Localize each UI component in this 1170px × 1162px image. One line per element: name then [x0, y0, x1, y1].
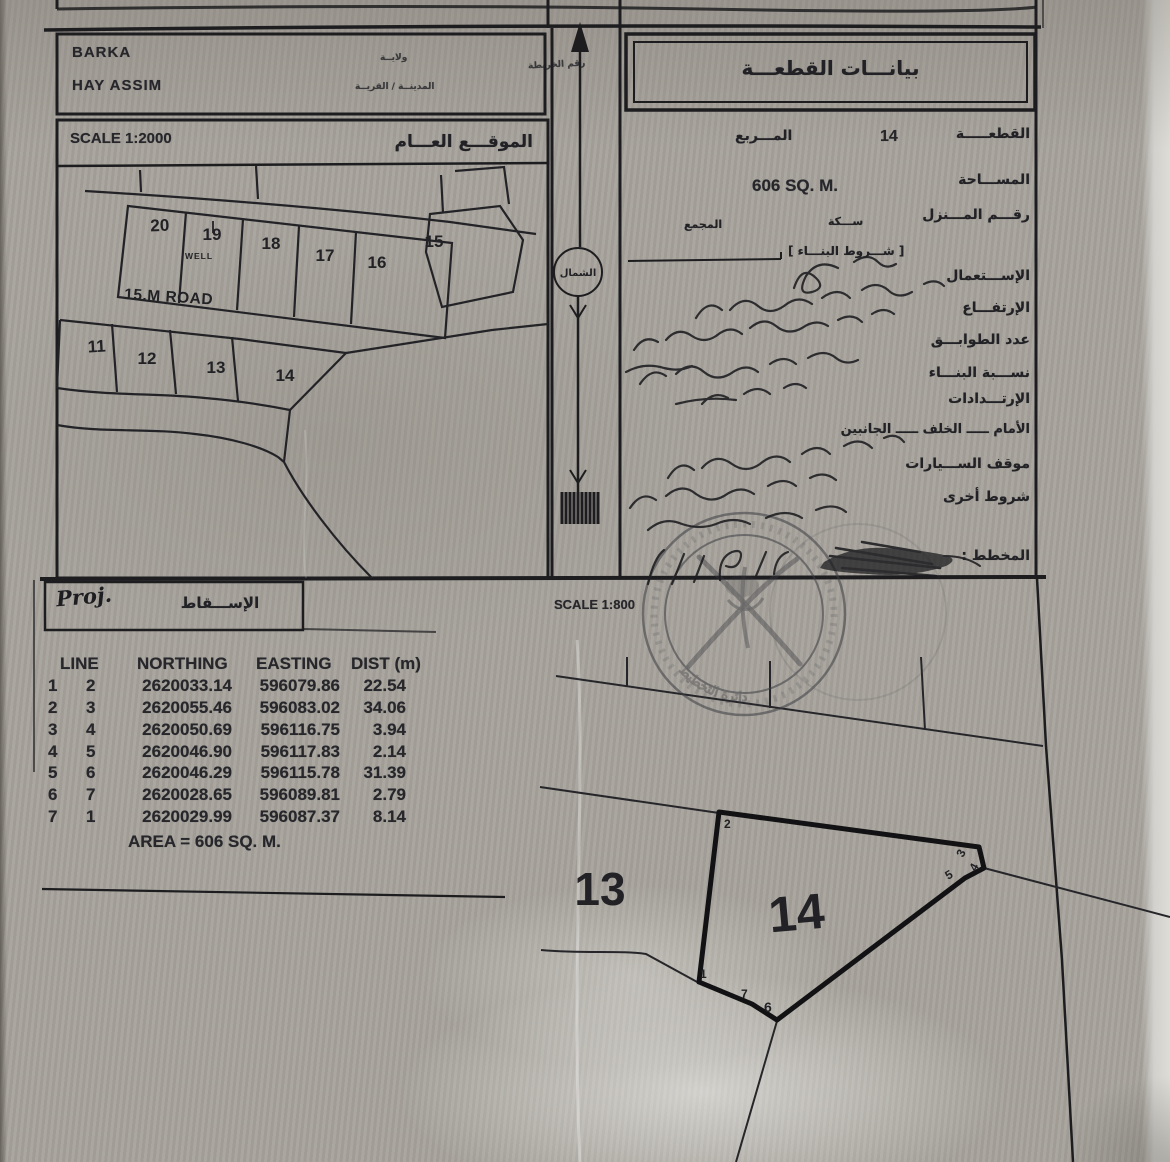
vertex-4: 4	[966, 861, 982, 874]
cell: 2620050.69	[126, 720, 232, 740]
vertex-5: 5	[943, 867, 956, 883]
vertex-2: 2	[724, 817, 731, 831]
house-number-label: رقـــم المـــنزل	[922, 207, 1030, 223]
scanned-krooki-plot-document: دائرة التخطيط 20 19 18 17 16 15	[0, 0, 1170, 1162]
cell: 1	[86, 807, 95, 827]
vertex-1: 1	[700, 967, 707, 981]
area-label: المســـاحة	[958, 172, 1030, 188]
cell: 1	[48, 676, 57, 696]
plot-data-panel-title: بيانـــات القطعـــة	[634, 56, 1027, 80]
town-name: BARKA	[72, 44, 131, 61]
cell: 8.14	[340, 807, 406, 827]
cell: 2620055.46	[126, 698, 232, 718]
cell: 3	[48, 720, 57, 740]
cell: 596117.83	[244, 742, 340, 762]
cell: 596083.02	[244, 698, 340, 718]
col-line: LINE	[60, 654, 99, 674]
map-plot-18: 18	[262, 234, 281, 253]
cell: 4	[48, 742, 57, 762]
map-plot-13: 13	[207, 358, 226, 377]
table-row: 452620046.90596117.832.14	[40, 742, 515, 762]
diagram-labels: 13 14 2 3 4 5 6 7 1	[574, 817, 982, 1015]
ratio-label: نســـبة البنـــاء	[929, 365, 1030, 381]
cell: 3	[86, 698, 95, 718]
table-row: 342620050.69596116.753.94	[40, 720, 515, 740]
map-scale-label: SCALE 1:2000	[70, 130, 172, 147]
handwritten-annotations	[626, 257, 980, 584]
location-map-drawing	[57, 166, 548, 578]
cell: 7	[86, 785, 95, 805]
cell: 2	[48, 698, 57, 718]
map-plot-12: 12	[138, 349, 157, 368]
vertex-labels: 2 3 4 5 6 7 1	[700, 817, 982, 1015]
proj-handwritten-note: Proj.	[55, 582, 113, 612]
height-label: الإرتفـــاع	[962, 300, 1030, 316]
cell: 2620033.14	[126, 676, 232, 696]
table-row: 122620033.14596079.8622.54	[40, 676, 515, 696]
street-label: ســـكة	[828, 215, 863, 228]
block-label: المـــربع	[735, 128, 792, 144]
cell: 2620029.99	[126, 807, 232, 827]
cell: 6	[48, 785, 57, 805]
plot-label: القطعـــــة	[956, 126, 1030, 142]
north-label: الشمال	[560, 268, 597, 279]
cell: 3.94	[340, 720, 406, 740]
official-stamp-icon: دائرة التخطيط	[643, 513, 946, 715]
cell: 596079.86	[244, 676, 340, 696]
cell: 596116.75	[244, 720, 340, 740]
road-label: 15.M ROAD	[124, 286, 214, 308]
cell: 5	[86, 742, 95, 762]
cell: 4	[86, 720, 95, 740]
wilaya-label: ولايــة	[380, 53, 407, 63]
frame-lines	[34, 0, 1073, 1162]
north-arrow-hatch-bar	[562, 492, 598, 524]
map-plot-15: 15	[425, 232, 444, 251]
map-plot-20: 20	[150, 216, 170, 236]
vertex-3: 3	[953, 847, 969, 860]
cell: 2.14	[340, 742, 406, 762]
cell: 2.79	[340, 785, 406, 805]
floors-label: عدد الطوابـــق	[931, 332, 1030, 348]
cell: 5	[48, 763, 57, 783]
area-value: 606 SQ. M.	[752, 176, 838, 196]
building-conditions-label: [ شـــروط البنـــاء ]	[788, 244, 904, 258]
area-note: AREA = 606 SQ. M.	[128, 832, 281, 852]
diagram-plot14-label: 14	[766, 883, 826, 944]
map-plot-11: 11	[87, 337, 106, 357]
parking-label: موقف الســـيارات	[905, 456, 1030, 472]
cell: 22.54	[340, 676, 406, 696]
table-row: 232620055.46596083.0234.06	[40, 698, 515, 718]
village-name: HAY ASSIM	[72, 77, 162, 94]
map-plot-16: 16	[368, 253, 387, 272]
cell: 2620046.90	[126, 742, 232, 762]
table-row: 562620046.29596115.7831.39	[40, 763, 515, 783]
plot-diagram-lines	[540, 657, 1170, 1162]
map-plot-19: 19	[203, 225, 222, 244]
cell: 596087.37	[244, 807, 340, 827]
usage-label: الإســـتعمال	[946, 268, 1030, 284]
setbacks-label: الإرتـــدادات	[948, 391, 1030, 407]
map-plot-17: 17	[316, 246, 335, 265]
map-plot-numbers: 20 19 18 17 16 15 11 12 13 14 WELL 15.M …	[87, 216, 443, 385]
complex-label: المجمع	[684, 218, 722, 231]
stamp-rim-text: دائرة التخطيط	[675, 663, 747, 705]
village-label: المدينــة / القريــة	[355, 82, 434, 92]
other-conditions-label: شروط أخرى	[943, 489, 1030, 505]
table-row: 712620029.99596087.378.14	[40, 807, 515, 827]
vertex-6: 6	[764, 999, 772, 1015]
cell: 596089.81	[244, 785, 340, 805]
plot-number-value: 14	[880, 128, 898, 146]
well-label: WELL	[185, 251, 213, 261]
col-easting: EASTING	[256, 654, 332, 674]
diagram-scale-label: SCALE 1:800	[554, 597, 635, 612]
diagram-plot13-label: 13	[574, 863, 625, 915]
survey-table: LINE NORTHING EASTING DIST (m) 122620033…	[40, 648, 515, 908]
col-dist: DIST (m)	[351, 654, 421, 674]
planner-label: المخطط :	[961, 548, 1030, 564]
cell: 7	[48, 807, 57, 827]
cell: 34.06	[340, 698, 406, 718]
col-northing: NORTHING	[137, 654, 228, 674]
cell: 596115.78	[244, 763, 340, 783]
map-title: الموقـــع العـــام	[330, 132, 533, 152]
cell: 2620028.65	[126, 785, 232, 805]
vertex-7: 7	[741, 987, 748, 1001]
projection-title: الإســـقاط	[150, 594, 290, 612]
cell: 31.39	[340, 763, 406, 783]
front-back-sides-row: الأمام ـــــ الخلف ـــــ الجانبين	[841, 422, 1030, 437]
cell: 2620046.29	[126, 763, 232, 783]
cell: 2	[86, 676, 95, 696]
table-row: 672620028.65596089.812.79	[40, 785, 515, 805]
cell: 6	[86, 763, 95, 783]
map-plot-14: 14	[276, 366, 295, 385]
